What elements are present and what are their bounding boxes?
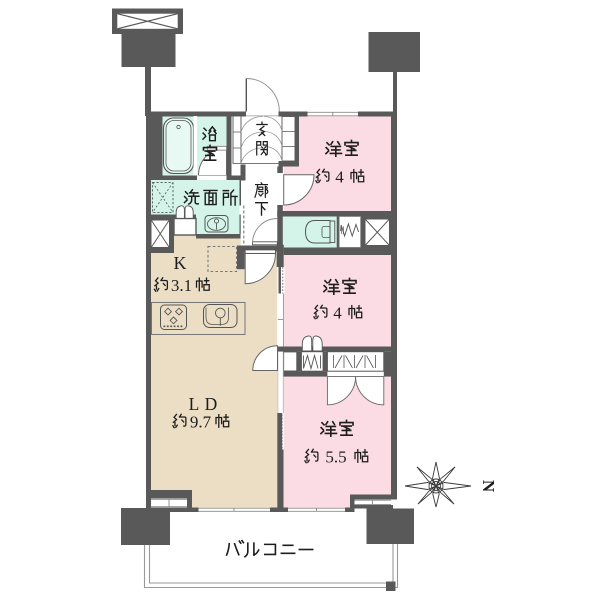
svg-text:5.5: 5.5: [325, 448, 346, 467]
svg-text:9.7: 9.7: [190, 413, 212, 432]
svg-text:D: D: [205, 394, 218, 414]
svg-text:N: N: [479, 480, 498, 493]
svg-text:4: 4: [333, 304, 342, 323]
svg-text:K: K: [174, 253, 187, 273]
svg-text:3.1: 3.1: [171, 276, 192, 295]
svg-text:L: L: [189, 394, 200, 414]
svg-text:4: 4: [335, 168, 344, 187]
